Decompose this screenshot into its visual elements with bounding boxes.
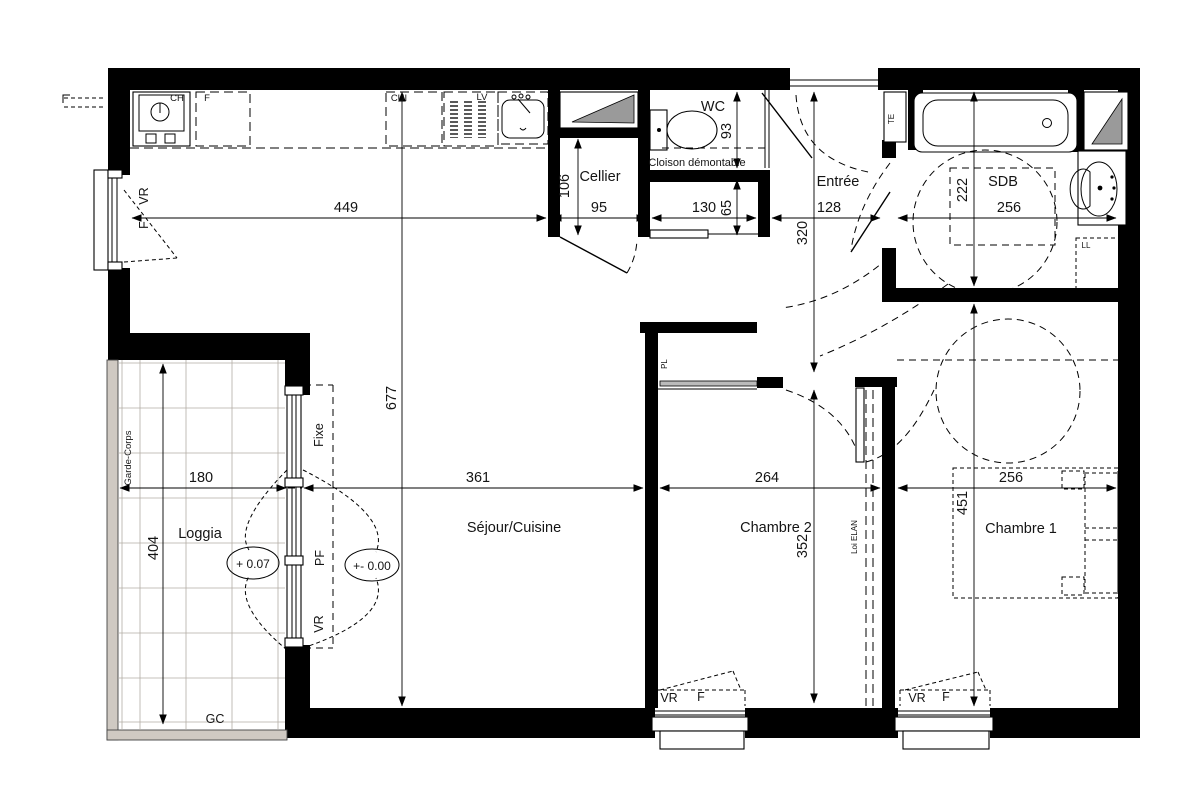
vr-label-column: VR [312,615,326,632]
dim-sdb-depth: 222 [955,178,971,202]
wall-segment [882,288,1127,302]
vr-label-chambre1-window: VR [908,691,925,705]
wall-segment [108,90,130,175]
entree-circulation-arc [782,258,888,308]
room-label-loggia: Loggia [178,526,222,542]
kitchen-sink [498,92,548,144]
wc-sliding-door [650,230,758,238]
te-label: TE [887,114,896,124]
room-label-chambre1: Chambre 1 [985,521,1057,537]
loggia-area [107,360,287,740]
pf-swing-loggia [245,576,287,650]
wall-segment [882,140,896,158]
dim-sejour-width: 361 [466,470,490,486]
wall-segment [640,322,757,333]
dim-wc-depth: 93 [719,123,735,139]
dim-chambre2-depth: 352 [795,534,811,558]
f-label-chambre1-window: F [942,690,950,704]
wall-segment [882,387,895,708]
pl-label: PL [660,359,669,369]
vr-label-left-window: VR [137,187,151,204]
window-left-facade [94,170,177,270]
wall-segment [878,68,1140,90]
wall-segment [285,708,655,738]
sdb-door-leaf [851,192,890,252]
room-labels: Loggia Séjour/Cuisine Cellier WC Entrée … [178,99,1057,542]
f-label-chambre2-window: F [697,690,705,704]
garde-corps-rail-left [107,360,118,740]
cloison-demontable-label: Cloison démontable [648,157,745,169]
wall-segment [758,182,770,237]
dim-niche-height: 65 [719,200,735,216]
wall-segment [757,377,783,388]
wall-segment [285,645,310,708]
dim-chambre1-depth: 451 [955,491,971,515]
fixe-label: Fixe [312,423,326,447]
level-marker-loggia: + 0.07 [227,547,279,579]
dim-sdb-width: 256 [997,200,1021,216]
wall-segment [548,90,560,237]
garde-corps-label: Garde-Corps [123,430,134,485]
dim-entree-width: 128 [817,200,841,216]
turning-circle-sdb [913,150,1057,294]
dim-niche-width: 130 [692,200,716,216]
washbasin [1070,151,1126,225]
chambre1-door-leaf [856,388,864,462]
walls [108,68,1140,738]
joint-symbol [63,95,70,103]
annotation-labels: Cloison démontable VR F Fixe PF VR Garde… [123,92,1091,726]
f-label-left-window: F [137,221,151,229]
closet-chambre2 [658,381,757,389]
level-sejour-value: +- 0.00 [353,559,391,573]
technical-shaft-cellier [560,92,638,128]
room-label-sdb: SDB [988,174,1018,190]
garde-corps-rail-bottom [107,730,287,740]
level-marker-sejour: +- 0.00 [345,549,399,581]
dim-loggia-depth: 404 [146,536,162,560]
ll-label: LL [1082,241,1091,250]
dim-loggia-width: 180 [189,470,213,486]
room-label-entree: Entrée [817,174,860,190]
ch-label: CH [170,93,184,104]
wall-segment [990,708,1140,738]
loi-elan-label: Loi ELAN [850,520,859,554]
loggia-tile-grid [118,360,285,730]
level-loggia-value: + 0.07 [236,557,270,571]
cellier-door-leaf [560,237,627,273]
room-label-wc: WC [701,99,725,115]
dim-cellier-depth: 106 [557,174,573,198]
dim-entree-depth: 320 [795,221,811,245]
floor-plan-page: + 0.07 +- 0.00 449 95 130 128 256 180 [0,0,1201,800]
chambre2-door-swing [786,390,860,460]
dim-chambre2-width: 264 [755,470,779,486]
lv-label: LV [477,92,489,103]
dim-kitchen-width: 449 [334,200,358,216]
wall-segment [108,68,790,90]
technical-shaft-sdb [1084,92,1128,150]
bathtub [914,93,1077,152]
chambre1-door-swing [866,390,934,462]
wall-segment [108,333,310,360]
wall-segment [855,377,897,387]
pf-label: PF [313,550,327,566]
wall-segment [645,333,658,708]
cellier-door-swing [627,240,637,273]
dim-cellier-width: 95 [591,200,607,216]
cui-label: CUI [391,93,407,104]
pf-swing [303,470,378,552]
dim-chambre1-width: 256 [999,470,1023,486]
room-label-cellier: Cellier [579,169,620,185]
gc-label: GC [206,712,225,726]
entrance-door-swing [796,95,868,172]
turning-circle-hall [936,319,1080,463]
pf-swing [303,578,378,648]
floor-plan-drawing: + 0.07 +- 0.00 449 95 130 128 256 180 [0,0,1201,800]
room-label-chambre2: Chambre 2 [740,520,812,536]
dishwasher-reservation [444,92,498,146]
window-chambre1 [895,672,993,749]
vr-label-chambre2-window: VR [660,691,677,705]
f-label-fridge: F [204,93,210,104]
dim-sejour-height: 677 [384,386,400,410]
pf-swing-loggia [245,470,287,550]
toilet [650,110,717,150]
wall-cloison-demontable [650,170,770,182]
wall-segment [745,708,898,738]
room-label-sejour-cuisine: Séjour/Cuisine [467,520,561,536]
window-chambre2 [652,671,748,749]
